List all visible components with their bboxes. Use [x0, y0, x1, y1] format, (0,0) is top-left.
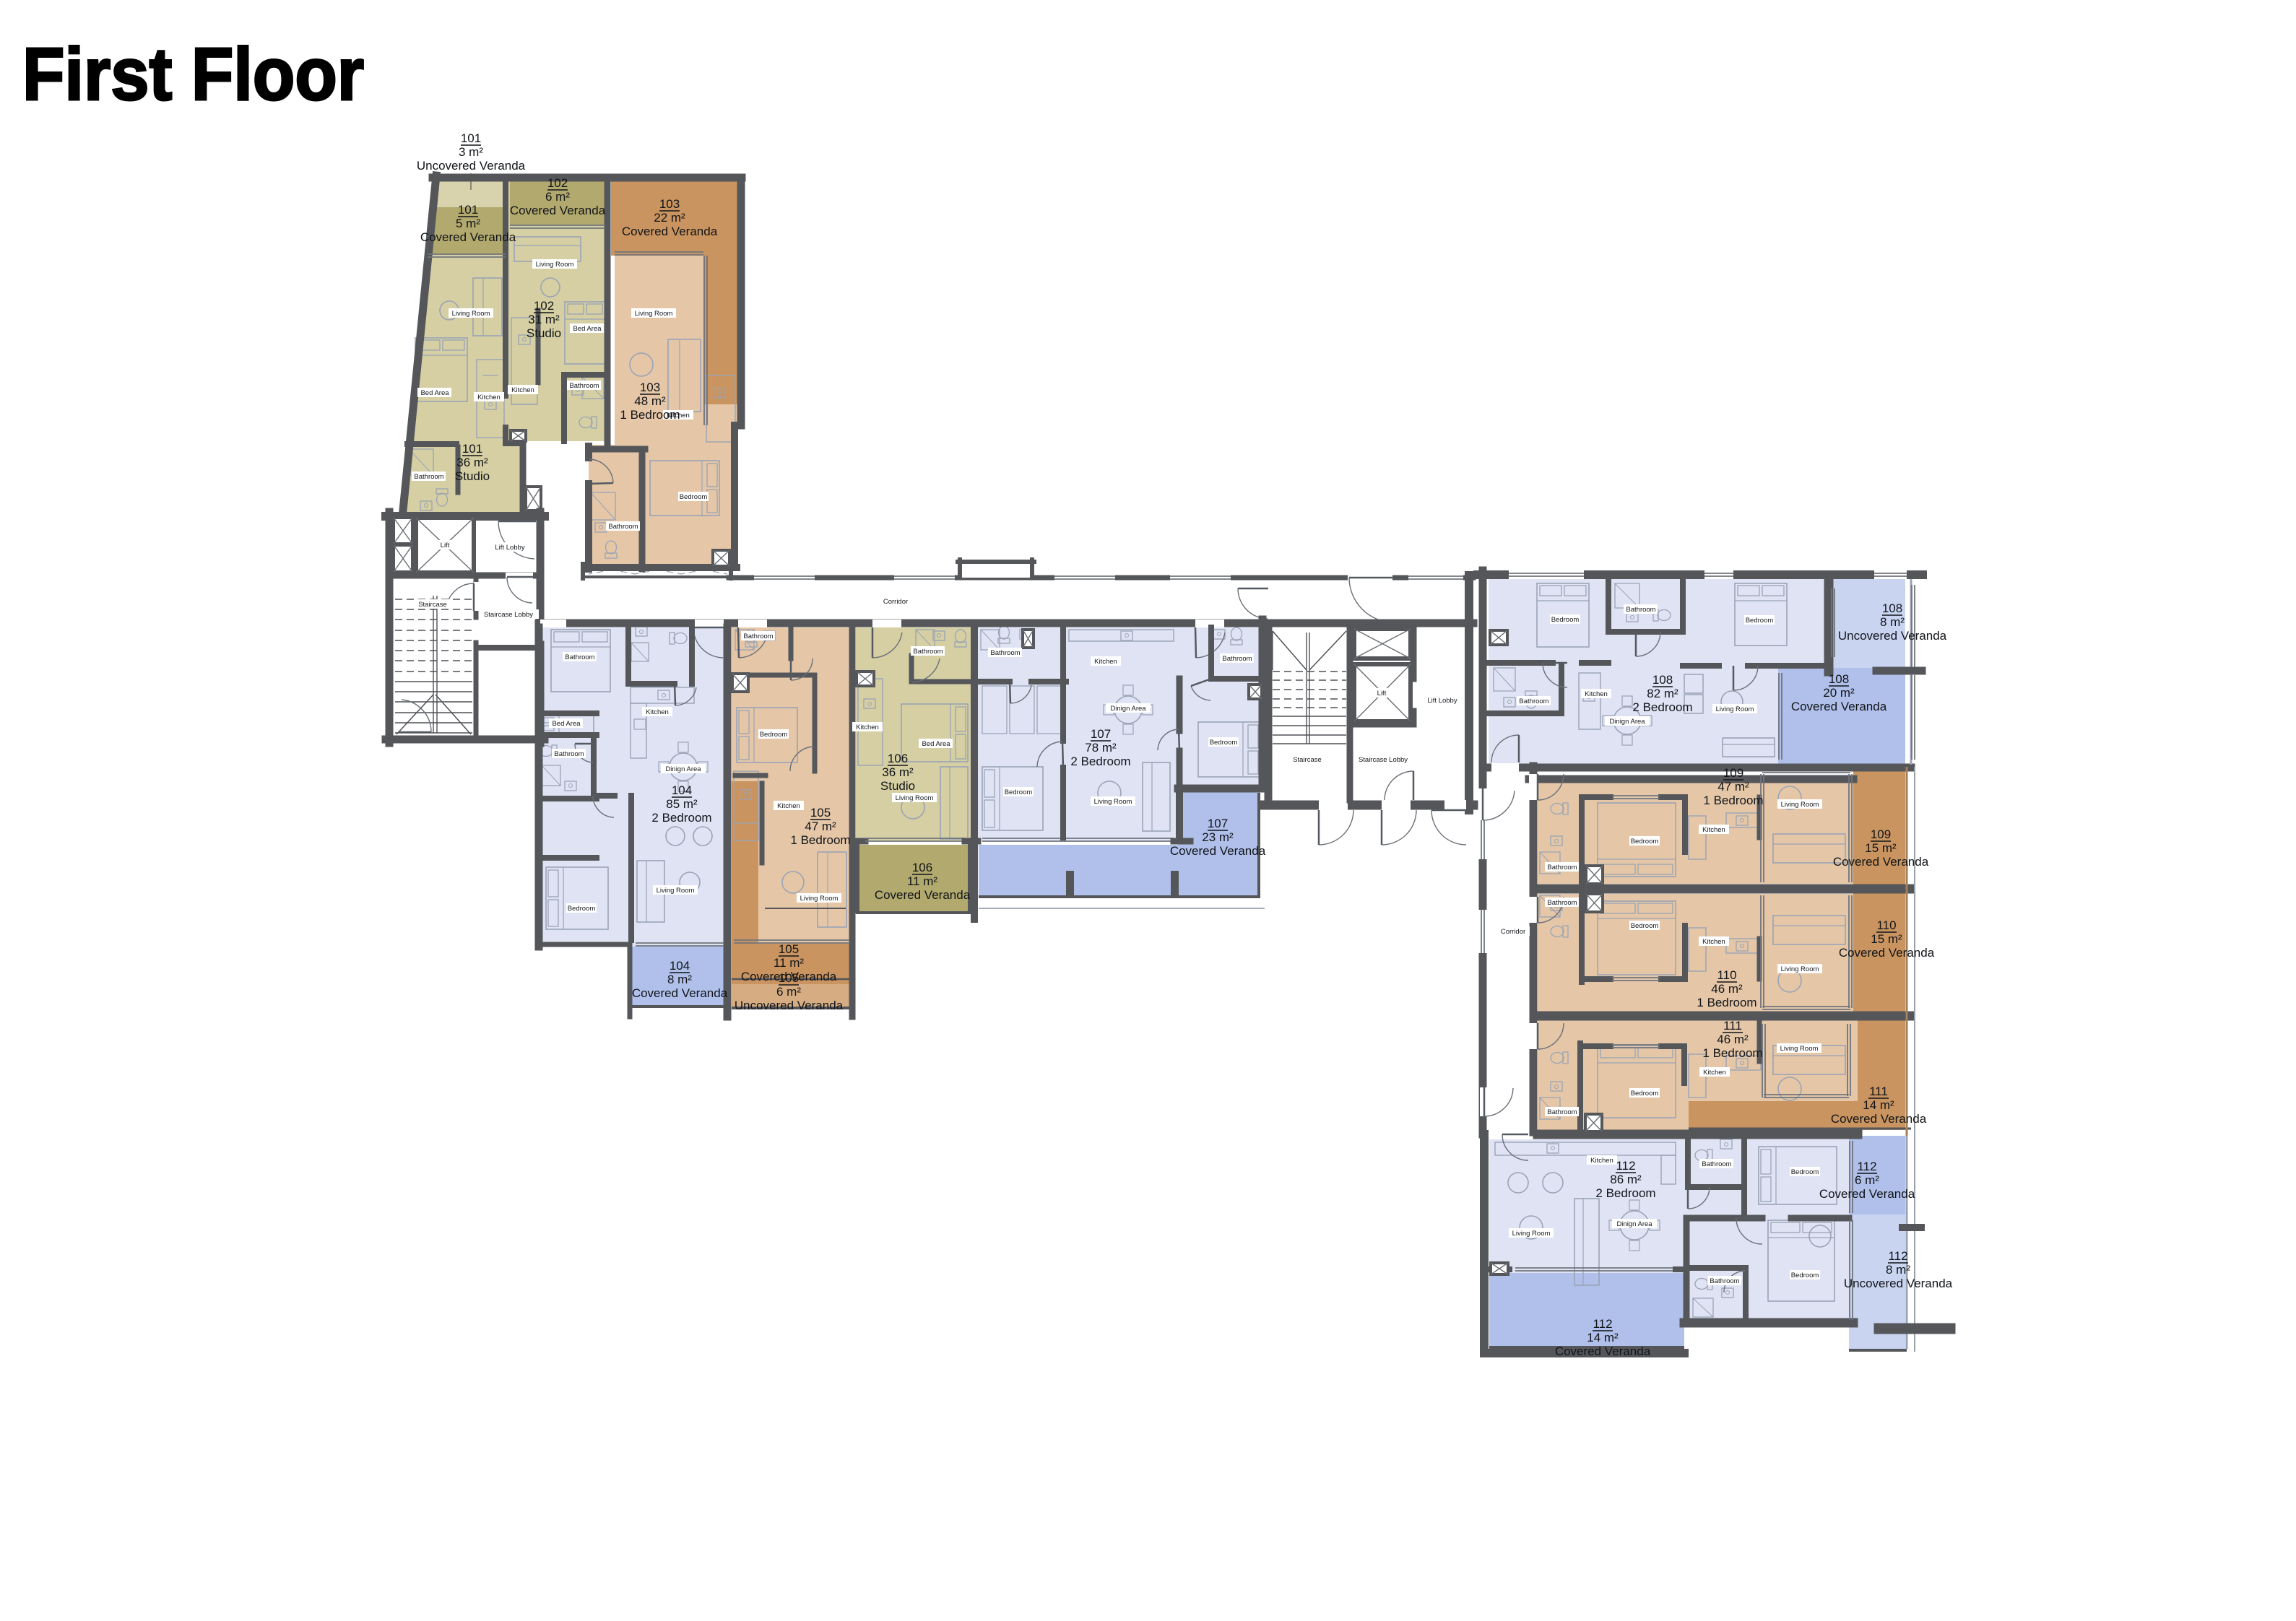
- svg-text:Studio: Studio: [455, 469, 490, 483]
- svg-text:107: 107: [1091, 727, 1111, 741]
- svg-text:Kitchen: Kitchen: [856, 723, 879, 731]
- svg-text:109: 109: [1723, 766, 1743, 780]
- svg-text:Corridor: Corridor: [883, 598, 908, 606]
- svg-text:Kitchen: Kitchen: [1590, 1157, 1613, 1165]
- svg-text:Dinign Area: Dinign Area: [1609, 718, 1645, 726]
- svg-text:Covered Veranda: Covered Veranda: [1839, 946, 1935, 960]
- svg-text:Covered Veranda: Covered Veranda: [1170, 844, 1266, 858]
- svg-text:1 Bedroom: 1 Bedroom: [790, 833, 850, 847]
- svg-text:Bathroom: Bathroom: [913, 648, 943, 656]
- svg-text:Bathroom: Bathroom: [608, 523, 638, 531]
- svg-text:Uncovered Veranda: Uncovered Veranda: [417, 159, 526, 173]
- svg-text:106: 106: [912, 861, 932, 874]
- svg-text:101: 101: [461, 131, 481, 145]
- svg-text:104: 104: [672, 783, 692, 797]
- svg-text:111: 111: [1869, 1085, 1888, 1098]
- svg-text:1 Bedroom: 1 Bedroom: [1697, 996, 1756, 1009]
- svg-text:110: 110: [1717, 968, 1736, 982]
- svg-text:105: 105: [779, 971, 799, 985]
- svg-text:Bathroom: Bathroom: [1710, 1277, 1739, 1285]
- svg-text:Bathroom: Bathroom: [565, 653, 594, 661]
- svg-text:Staircase Lobby: Staircase Lobby: [1359, 756, 1408, 764]
- svg-text:86 m²: 86 m²: [1610, 1173, 1642, 1186]
- svg-text:Lift: Lift: [1377, 690, 1387, 697]
- svg-text:Corridor: Corridor: [1501, 928, 1525, 936]
- svg-text:Bed Area: Bed Area: [922, 740, 950, 748]
- svg-text:108: 108: [1829, 672, 1849, 686]
- svg-text:Bed Area: Bed Area: [552, 720, 581, 728]
- svg-text:14 m²: 14 m²: [1863, 1098, 1894, 1112]
- svg-text:Bathroom: Bathroom: [1547, 899, 1577, 907]
- svg-text:112: 112: [1888, 1249, 1907, 1263]
- svg-text:101: 101: [458, 203, 478, 217]
- svg-text:Bathroom: Bathroom: [1547, 1108, 1577, 1116]
- svg-text:Uncovered Veranda: Uncovered Veranda: [1844, 1277, 1953, 1290]
- svg-text:Living Room: Living Room: [452, 310, 490, 318]
- svg-text:47 m²: 47 m²: [805, 820, 836, 833]
- svg-text:1 Bedroom: 1 Bedroom: [1703, 794, 1763, 807]
- svg-text:6 m²: 6 m²: [776, 985, 801, 999]
- svg-text:Covered Veranda: Covered Veranda: [1819, 1187, 1915, 1201]
- svg-text:78 m²: 78 m²: [1085, 741, 1117, 755]
- svg-text:15 m²: 15 m²: [1871, 932, 1902, 946]
- svg-text:Covered Veranda: Covered Veranda: [875, 888, 971, 902]
- svg-text:Living Room: Living Room: [635, 310, 673, 318]
- svg-text:Bedroom: Bedroom: [1210, 739, 1238, 747]
- svg-text:Bathroom: Bathroom: [569, 382, 599, 390]
- svg-text:Kitchen: Kitchen: [1702, 826, 1725, 834]
- svg-text:112: 112: [1616, 1159, 1635, 1173]
- svg-text:108: 108: [1652, 673, 1673, 687]
- svg-text:14 m²: 14 m²: [1587, 1331, 1619, 1344]
- svg-text:Bedroom: Bedroom: [680, 493, 708, 501]
- svg-text:103: 103: [659, 197, 680, 211]
- svg-text:Bed Area: Bed Area: [420, 389, 449, 397]
- svg-text:Covered Veranda: Covered Veranda: [420, 230, 516, 244]
- svg-text:23 m²: 23 m²: [1202, 830, 1234, 844]
- svg-text:11 m²: 11 m²: [774, 956, 805, 970]
- svg-text:110: 110: [1876, 918, 1896, 932]
- svg-text:101: 101: [462, 442, 482, 456]
- svg-text:Bathroom: Bathroom: [1222, 655, 1252, 663]
- svg-text:Kitchen: Kitchen: [1702, 938, 1725, 946]
- svg-text:First Floor: First Floor: [22, 32, 364, 116]
- svg-text:Living Room: Living Room: [1094, 798, 1132, 806]
- svg-text:36 m²: 36 m²: [882, 765, 914, 779]
- svg-text:Bed Area: Bed Area: [573, 325, 602, 333]
- svg-text:2 Bedroom: 2 Bedroom: [651, 811, 711, 825]
- svg-text:31 m²: 31 m²: [528, 313, 560, 326]
- svg-text:Living Room: Living Room: [657, 887, 695, 895]
- svg-text:Bedroom: Bedroom: [568, 905, 596, 913]
- svg-text:Bedroom: Bedroom: [1551, 616, 1580, 624]
- svg-text:Bedroom: Bedroom: [1005, 788, 1033, 796]
- svg-text:6 m²: 6 m²: [545, 190, 570, 204]
- svg-text:Living Room: Living Room: [1716, 705, 1754, 713]
- svg-text:112: 112: [1857, 1160, 1876, 1173]
- svg-text:105: 105: [779, 942, 799, 956]
- svg-text:Bedroom: Bedroom: [1631, 838, 1659, 846]
- svg-text:Bathroom: Bathroom: [1702, 1160, 1731, 1168]
- svg-text:46 m²: 46 m²: [1711, 982, 1743, 996]
- svg-text:Bathroom: Bathroom: [414, 473, 443, 481]
- svg-text:109: 109: [1871, 827, 1891, 841]
- svg-text:1 Bedroom: 1 Bedroom: [1702, 1046, 1762, 1060]
- svg-text:Bedroom: Bedroom: [1791, 1168, 1819, 1176]
- svg-text:Staircase: Staircase: [1293, 756, 1322, 764]
- svg-text:Uncovered Veranda: Uncovered Veranda: [735, 999, 844, 1012]
- svg-text:Lift Lobby: Lift Lobby: [495, 544, 524, 552]
- svg-text:107: 107: [1208, 817, 1228, 830]
- svg-text:Living Room: Living Room: [1512, 1230, 1551, 1238]
- svg-text:105: 105: [810, 806, 831, 820]
- svg-text:22 m²: 22 m²: [654, 211, 685, 225]
- svg-text:Bathroom: Bathroom: [554, 750, 584, 758]
- svg-text:Kitchen: Kitchen: [511, 386, 534, 394]
- svg-text:Covered Veranda: Covered Veranda: [510, 204, 606, 217]
- svg-text:Kitchen: Kitchen: [1094, 658, 1117, 666]
- svg-text:Bathroom: Bathroom: [1519, 697, 1548, 705]
- svg-text:8 m²: 8 m²: [1880, 615, 1905, 629]
- svg-text:Bathroom: Bathroom: [743, 633, 773, 640]
- svg-text:Kitchen: Kitchen: [1703, 1069, 1726, 1077]
- svg-text:103: 103: [640, 381, 660, 394]
- svg-text:Bathroom: Bathroom: [990, 649, 1020, 657]
- svg-text:Staircase: Staircase: [418, 601, 447, 609]
- svg-text:Covered Veranda: Covered Veranda: [1831, 1112, 1927, 1126]
- svg-text:Uncovered Veranda: Uncovered Veranda: [1838, 629, 1947, 643]
- svg-text:5 m²: 5 m²: [456, 217, 480, 230]
- svg-text:Covered Veranda: Covered Veranda: [622, 225, 718, 238]
- svg-text:Studio: Studio: [527, 326, 561, 340]
- svg-text:46 m²: 46 m²: [1717, 1033, 1749, 1046]
- svg-text:Covered Veranda: Covered Veranda: [1791, 700, 1887, 713]
- svg-text:20 m²: 20 m²: [1823, 686, 1855, 700]
- svg-text:Bedroom: Bedroom: [760, 731, 788, 739]
- svg-text:102: 102: [534, 299, 554, 313]
- svg-text:11 m²: 11 m²: [907, 874, 938, 888]
- svg-text:Staircase Lobby: Staircase Lobby: [484, 611, 533, 619]
- svg-text:111: 111: [1723, 1019, 1742, 1033]
- svg-text:Bedroom: Bedroom: [1791, 1272, 1819, 1279]
- svg-text:82 m²: 82 m²: [1647, 687, 1678, 700]
- svg-text:Living Room: Living Room: [1781, 801, 1819, 809]
- svg-text:Lift Lobby: Lift Lobby: [1427, 697, 1457, 705]
- svg-text:Bathroom: Bathroom: [1626, 606, 1655, 614]
- svg-text:Dinign Area: Dinign Area: [1616, 1220, 1652, 1228]
- svg-text:Kitchen: Kitchen: [477, 394, 501, 401]
- svg-text:106: 106: [888, 752, 908, 765]
- svg-text:2 Bedroom: 2 Bedroom: [1632, 700, 1692, 714]
- svg-text:108: 108: [1882, 601, 1902, 615]
- svg-text:6 m²: 6 m²: [1855, 1173, 1879, 1187]
- svg-text:2 Bedroom: 2 Bedroom: [1595, 1186, 1655, 1200]
- svg-text:3 m²: 3 m²: [459, 145, 483, 159]
- svg-text:Living Room: Living Room: [896, 794, 934, 802]
- svg-text:Studio: Studio: [880, 779, 915, 793]
- svg-text:85 m²: 85 m²: [666, 797, 698, 811]
- svg-text:112: 112: [1593, 1317, 1612, 1331]
- svg-text:Covered Veranda: Covered Veranda: [1833, 855, 1929, 869]
- svg-text:36 m²: 36 m²: [456, 456, 488, 469]
- svg-text:Kitchen: Kitchen: [646, 708, 669, 716]
- svg-text:Dinign Area: Dinign Area: [665, 765, 701, 773]
- svg-text:102: 102: [547, 176, 568, 190]
- svg-text:8 m²: 8 m²: [667, 973, 692, 986]
- svg-text:Bedroom: Bedroom: [1631, 922, 1659, 930]
- svg-text:Living Room: Living Room: [1781, 965, 1819, 973]
- svg-text:2 Bedroom: 2 Bedroom: [1070, 755, 1130, 768]
- svg-text:Dinign Area: Dinign Area: [1110, 705, 1146, 713]
- svg-text:Covered Veranda: Covered Veranda: [1555, 1344, 1651, 1358]
- svg-text:Kitchen: Kitchen: [1585, 690, 1608, 698]
- svg-text:Living Room: Living Room: [1780, 1045, 1819, 1053]
- svg-text:Bedroom: Bedroom: [1631, 1090, 1659, 1098]
- svg-text:48 m²: 48 m²: [634, 394, 666, 408]
- svg-text:Kitchen: Kitchen: [777, 802, 800, 810]
- svg-text:8 m²: 8 m²: [1886, 1263, 1910, 1277]
- svg-text:Bathroom: Bathroom: [1547, 864, 1577, 872]
- svg-text:1 Bedroom: 1 Bedroom: [620, 408, 680, 422]
- svg-text:Lift: Lift: [441, 542, 450, 549]
- svg-text:Living Room: Living Room: [800, 895, 839, 903]
- svg-text:47 m²: 47 m²: [1717, 780, 1749, 794]
- svg-text:Bedroom: Bedroom: [1746, 617, 1774, 625]
- svg-text:Covered Veranda: Covered Veranda: [632, 986, 728, 1000]
- svg-text:15 m²: 15 m²: [1865, 841, 1897, 855]
- svg-text:104: 104: [670, 959, 690, 973]
- svg-text:Living Room: Living Room: [536, 261, 574, 269]
